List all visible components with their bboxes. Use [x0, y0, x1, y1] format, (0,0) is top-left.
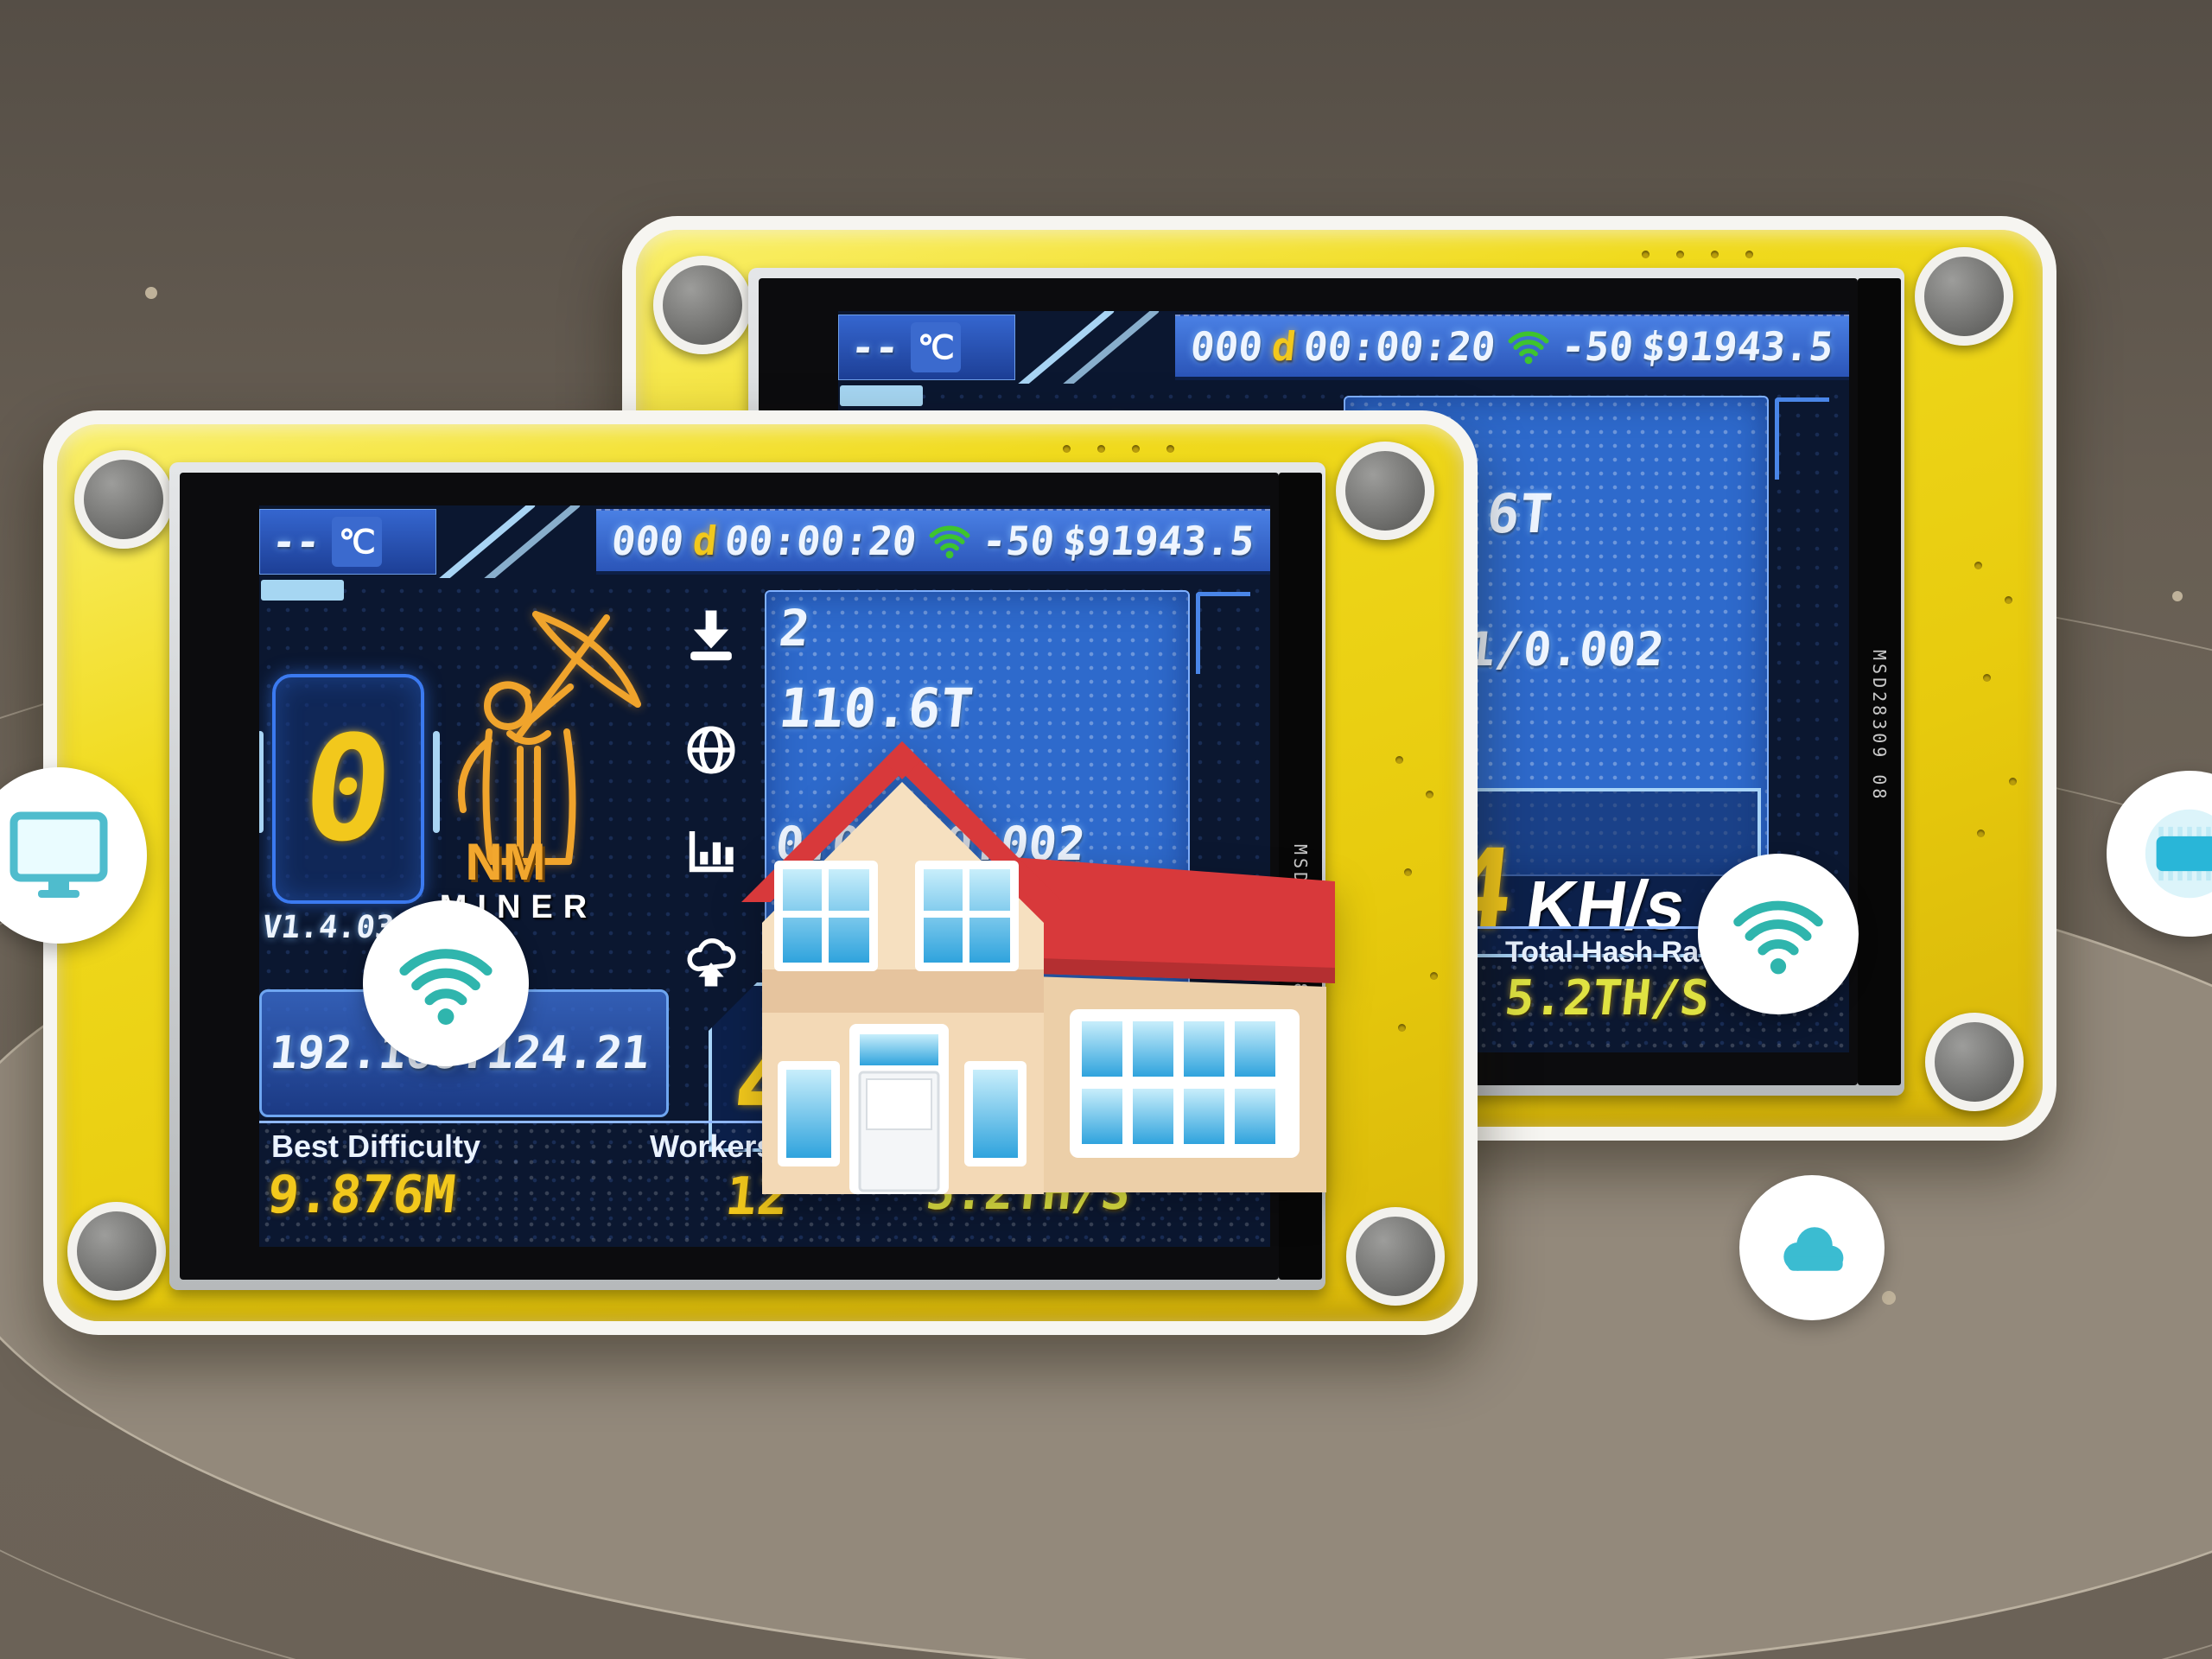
background-dot: [2172, 591, 2183, 601]
solder-pad: [1642, 251, 1649, 258]
wifi-rssi: -50: [980, 518, 1057, 564]
scene: MSD28309 08 -- ℃ 000 d 00:00:20: [0, 0, 2212, 1659]
solder-pad: [1395, 756, 1403, 764]
screw-icon: [67, 1202, 166, 1300]
wifi-signal-icon: [925, 520, 974, 562]
background-dot: [145, 287, 157, 299]
cloud-badge: [1739, 1175, 1885, 1320]
module-code: MSD28309 08: [1869, 650, 1890, 1085]
shares-value: 2: [776, 599, 812, 658]
block-count: 0: [297, 716, 400, 861]
wifi-signal-icon: [1504, 326, 1553, 367]
solder-pad: [1132, 445, 1140, 453]
best-difficulty-label: Best Difficulty: [271, 1128, 480, 1165]
solder-pad: [1745, 251, 1753, 258]
module-code-strip: MSD28309 08: [1858, 278, 1901, 1085]
solder-pad: [1711, 251, 1719, 258]
wifi-badge: [363, 900, 529, 1066]
screw-icon: [1915, 247, 2013, 346]
background-dot: [1882, 1291, 1896, 1305]
screw-icon: [1336, 442, 1434, 540]
corner-bracket: [1775, 397, 1829, 480]
screw-icon: [1925, 1013, 2024, 1111]
status-bar: 000 d 00:00:20 -50 $91943.5: [596, 509, 1270, 575]
block-counter: 0: [272, 674, 424, 904]
solder-pad: [1398, 1024, 1406, 1032]
best-difficulty-value: 9.876M: [264, 1165, 458, 1225]
corner-bracket: [1196, 592, 1250, 674]
progress-fragment: [840, 385, 923, 406]
uptime-day-suffix: d: [690, 518, 719, 564]
solder-pad: [1166, 445, 1174, 453]
progress-fragment: [261, 580, 344, 601]
wifi-rssi: -50: [1559, 323, 1636, 370]
screw-icon: [653, 256, 752, 354]
solder-pad: [1097, 445, 1105, 453]
solder-pad: [1063, 445, 1071, 453]
solder-pad: [1404, 868, 1412, 876]
uptime-time: 00:00:20: [1301, 323, 1497, 370]
screw-icon: [74, 450, 173, 549]
house-illustration: [726, 734, 1348, 1205]
temperature-tile: -- ℃: [259, 509, 436, 575]
btc-price: $91943.5: [1639, 323, 1835, 370]
solder-pad: [1983, 674, 1991, 682]
status-bar: 000 d 00:00:20 -50 $91943.5: [1175, 315, 1849, 380]
door: [849, 1024, 949, 1194]
temperature-tile: -- ℃: [838, 315, 1015, 380]
screw-icon: [1346, 1207, 1445, 1306]
temperature-value: --: [849, 324, 901, 371]
uptime-days: 000: [610, 518, 687, 564]
temperature-unit: ℃: [332, 517, 382, 567]
uptime-day-suffix: d: [1269, 323, 1298, 370]
total-hash-label: Total Hash Rate: [1505, 936, 1725, 969]
solder-pad: [1974, 562, 1982, 569]
temperature-unit: ℃: [911, 322, 961, 372]
brand-nm: NM: [432, 832, 579, 892]
solder-pad: [1426, 791, 1433, 798]
wifi-badge: [1698, 854, 1859, 1014]
solder-pad: [1430, 972, 1438, 980]
topbar-divider: [436, 505, 596, 578]
solder-pad: [1676, 251, 1684, 258]
solder-pad: [2009, 778, 2017, 785]
solder-pad: [2005, 596, 2012, 604]
uptime-days: 000: [1189, 323, 1266, 370]
uptime-time: 00:00:20: [722, 518, 918, 564]
best-share-value: 110.6T: [776, 677, 976, 740]
total-hash-value: 5.2TH/S: [1503, 970, 1713, 1027]
topbar-divider: [1015, 311, 1175, 384]
btc-price: $91943.5: [1060, 518, 1256, 564]
temperature-value: --: [270, 518, 322, 565]
download-icon: [683, 606, 740, 663]
solder-pad: [1977, 829, 1985, 837]
